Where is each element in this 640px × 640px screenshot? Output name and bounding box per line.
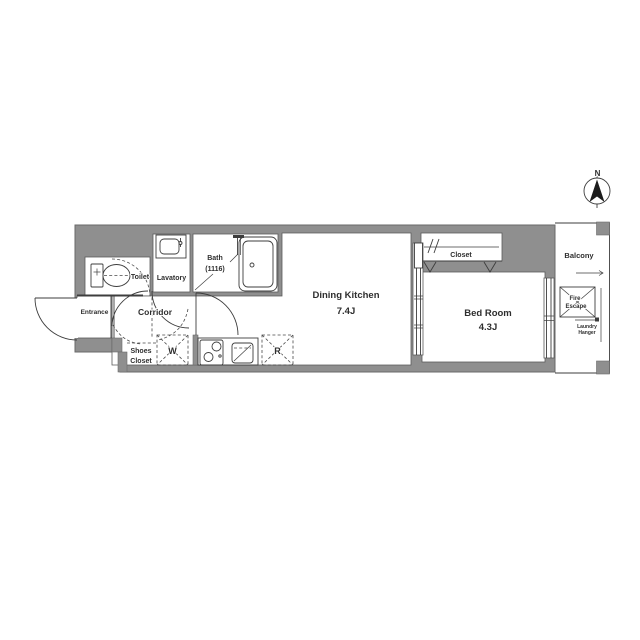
floor-plan-page: N Toilet Lavatory Bath (1116) Entrance C… [0, 0, 640, 640]
balcony-corner-post [597, 222, 610, 235]
balcony-label: Balcony [564, 251, 594, 260]
entrance-door-opening [74, 298, 78, 338]
svg-text:Hanger: Hanger [578, 330, 595, 336]
balcony [555, 222, 610, 374]
svg-text:Closet: Closet [130, 358, 152, 365]
toilet-icon [91, 264, 131, 287]
fire-escape-hatch [560, 287, 595, 317]
dining-kitchen-size: 7.4J [337, 306, 356, 317]
sink-icon [156, 235, 186, 258]
corridor-label: Corridor [138, 307, 173, 317]
kitchen-sink-icon [232, 343, 253, 363]
bathtub-icon [233, 235, 277, 291]
svg-text:Escape: Escape [565, 304, 587, 310]
lavatory-label: Lavatory [157, 275, 186, 282]
refrigerator-label: R [274, 346, 281, 356]
entrance-label: Entrance [81, 309, 109, 316]
stove-icon [200, 340, 223, 365]
entrance-area [77, 296, 112, 338]
compass-north-label: N [595, 169, 601, 178]
fire-escape-label: Fire [569, 296, 581, 302]
bedroom-size: 4.3J [479, 322, 498, 333]
compass-icon [584, 174, 610, 208]
shoes-closet-label: Shoes [130, 348, 151, 355]
floor-plan-drawing: N Toilet Lavatory Bath (1116) Entrance C… [0, 0, 640, 640]
toilet-label: Toilet [131, 274, 150, 281]
bedroom-label: Bed Room [464, 308, 512, 319]
bath-label: Bath [207, 255, 223, 262]
washer-label: W [168, 346, 177, 356]
balcony-corner-post [597, 361, 610, 374]
window-opening [544, 278, 554, 358]
closet-label: Closet [450, 252, 472, 259]
dining-kitchen-label: Dining Kitchen [312, 290, 379, 301]
bath-size: (1116) [205, 266, 224, 273]
entrance-door-swing [35, 298, 77, 340]
